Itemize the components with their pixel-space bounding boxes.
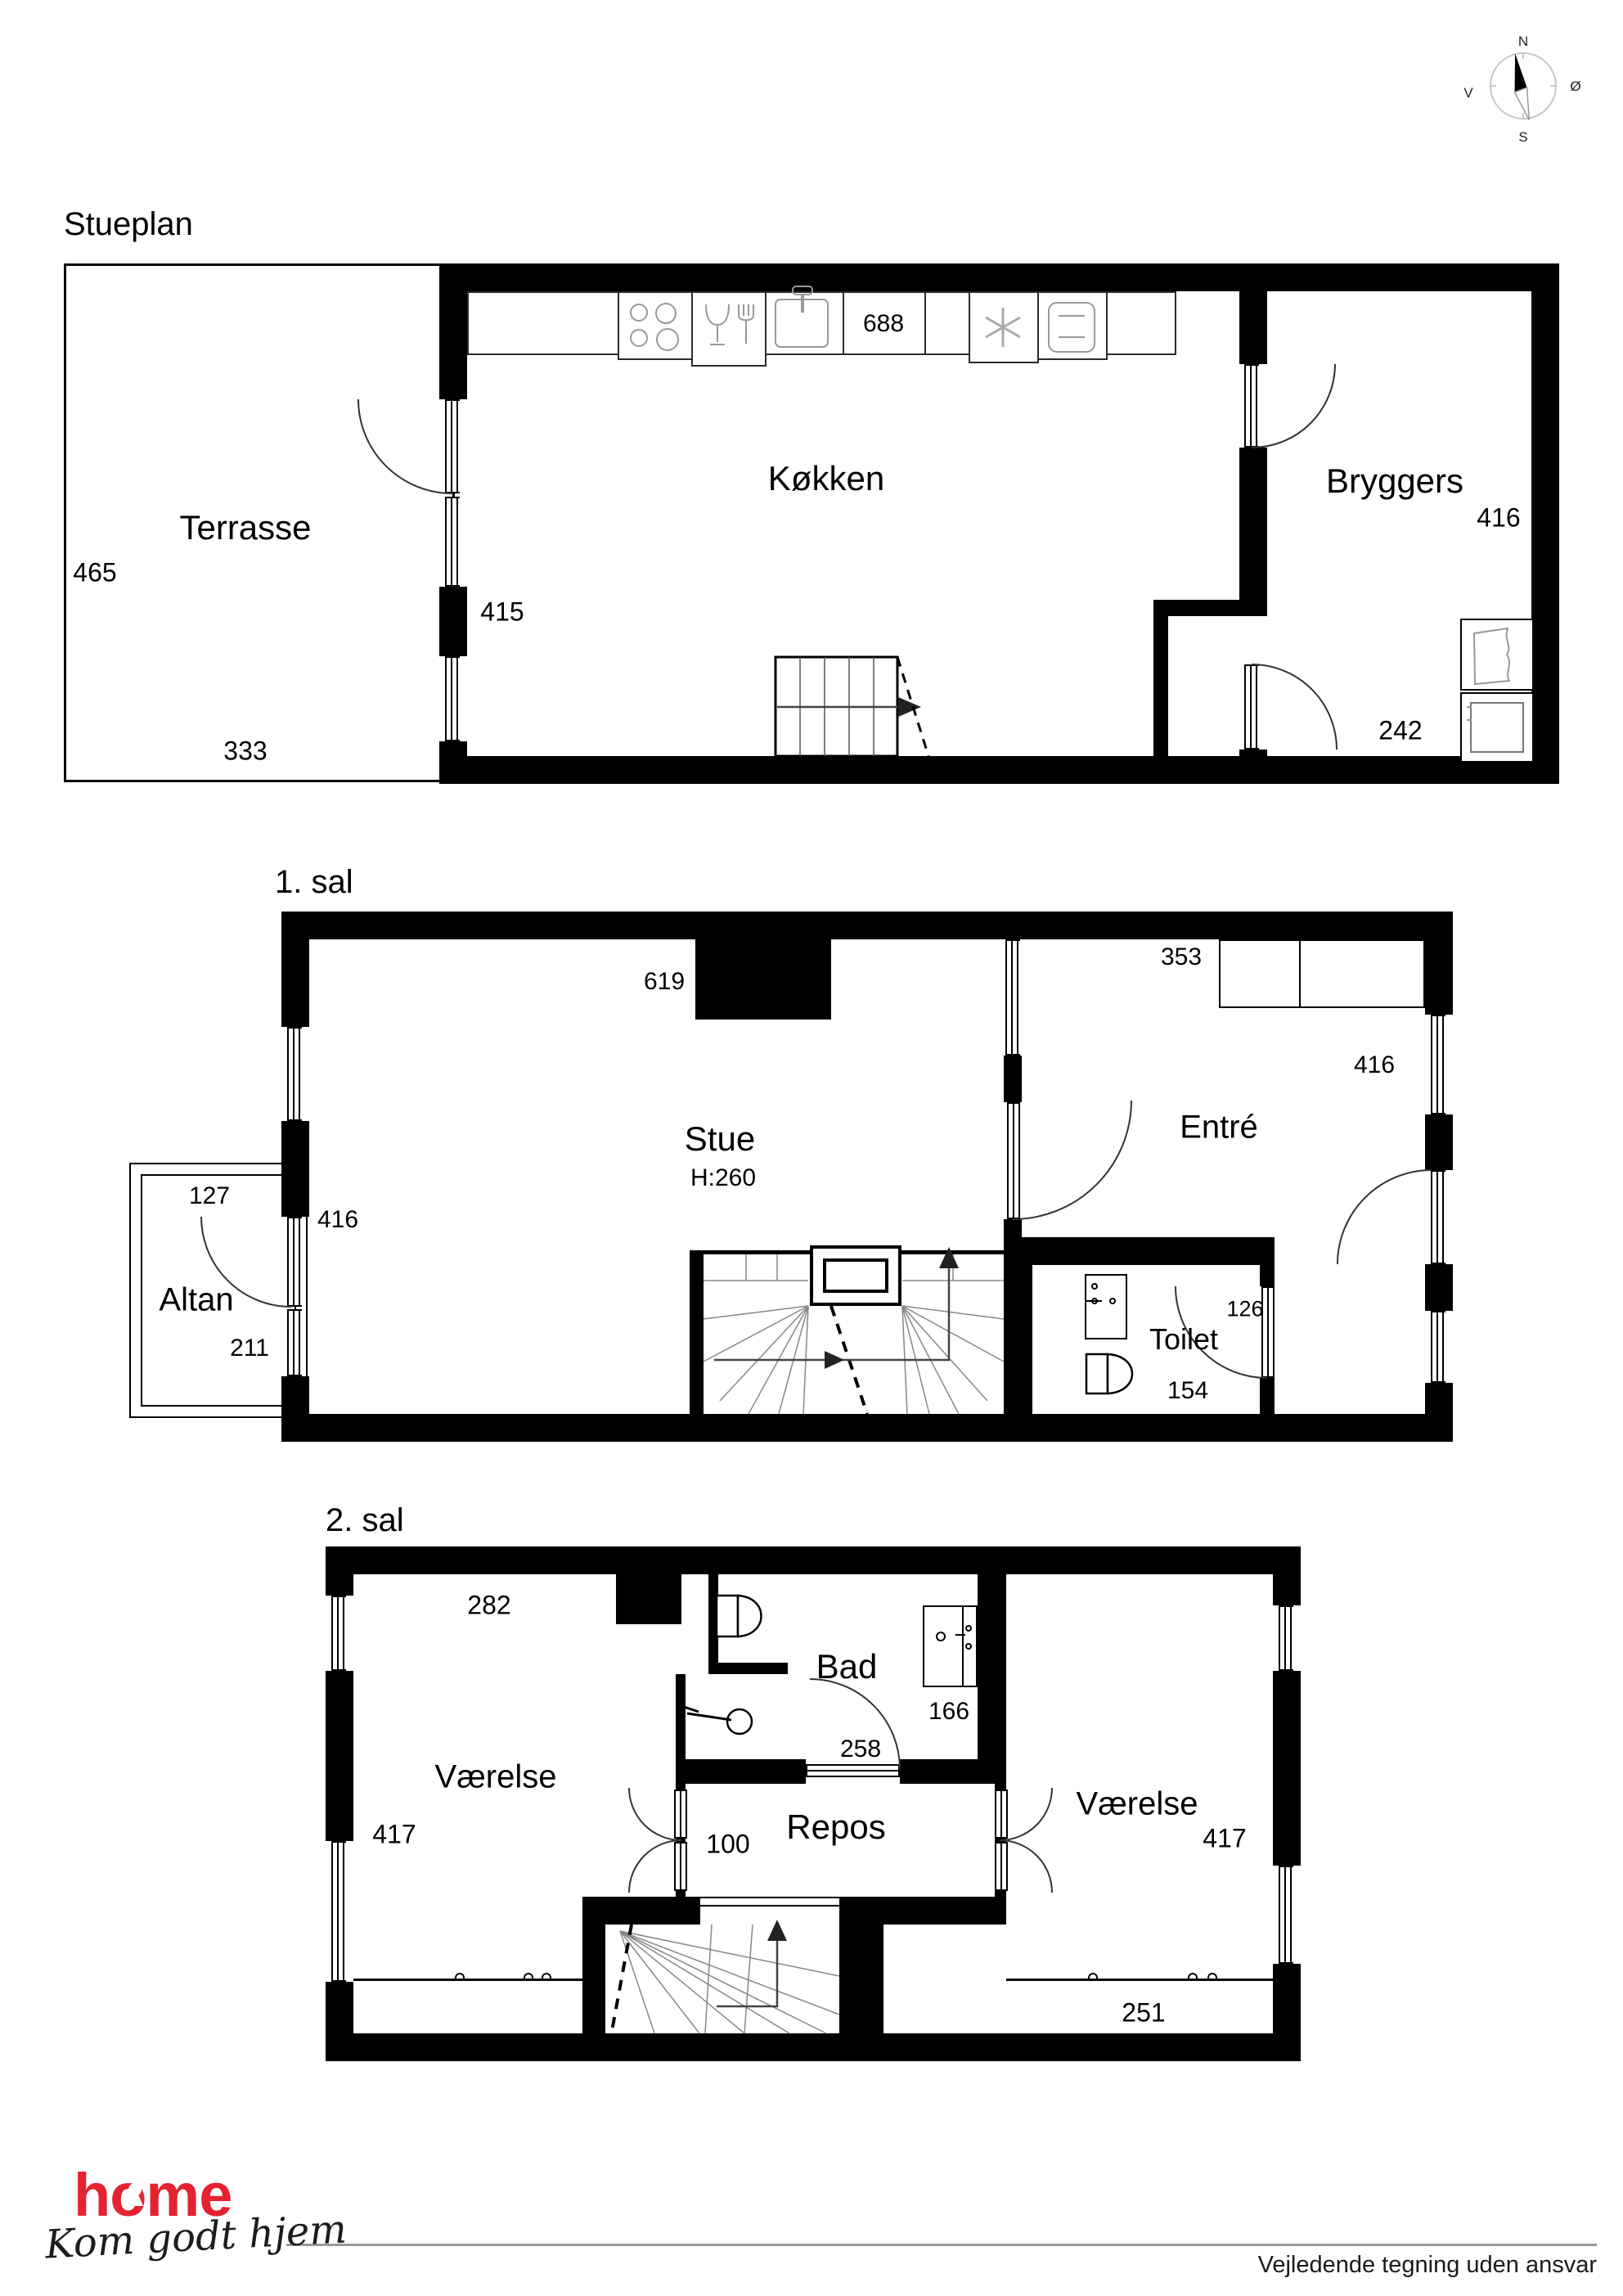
- room-label-bad: Bad: [816, 1647, 878, 1686]
- wall: [281, 912, 1453, 939]
- floor2-title: 1. sal: [275, 864, 353, 901]
- compass-west-label: V: [1463, 85, 1473, 101]
- dishwasher-counter: [691, 291, 767, 367]
- stair-railing: [704, 1250, 810, 1254]
- window: [445, 656, 460, 741]
- wall: [439, 741, 467, 784]
- wall: [995, 1784, 1006, 1790]
- stair-landing-edge: [700, 1897, 839, 1907]
- wall: [839, 1897, 883, 2033]
- glass-partition: [1005, 939, 1020, 1056]
- dim-619: 619: [644, 968, 685, 996]
- compass-east-label: Ø: [1570, 79, 1580, 94]
- dim-242: 242: [1378, 716, 1422, 746]
- wall: [326, 1982, 353, 2061]
- wall: [708, 1574, 718, 1674]
- wall: [708, 1663, 788, 1674]
- toilet-fixture-icon: [1086, 1354, 1132, 1393]
- wall: [1239, 263, 1267, 364]
- vanity-divider: [962, 1605, 964, 1687]
- wall: [1004, 1056, 1022, 1102]
- window: [1431, 1015, 1445, 1114]
- freezer-counter: [969, 291, 1039, 363]
- sink-counter: [765, 291, 844, 355]
- dim-127: 127: [189, 1182, 230, 1210]
- wall: [995, 1839, 1006, 1842]
- window: [445, 497, 460, 587]
- room-label-vaerelse-right: Værelse: [1077, 1786, 1198, 1823]
- compass-north-label: N: [1518, 34, 1528, 49]
- compass-south-label: S: [1518, 129, 1527, 145]
- washing-machine: [1460, 619, 1534, 691]
- wall: [676, 1759, 806, 1784]
- wardrobe: [1219, 939, 1425, 1008]
- wall: [1153, 600, 1267, 616]
- wall: [1239, 448, 1267, 600]
- double-door-leaf: [995, 1790, 1008, 1839]
- wall: [439, 263, 467, 399]
- chimney: [616, 1574, 681, 1624]
- bryggers-door-leaf: [1244, 364, 1259, 448]
- wall: [281, 1376, 309, 1442]
- stairwell-window-inner: [823, 1258, 888, 1293]
- wall: [1425, 1383, 1453, 1442]
- wall: [326, 1671, 353, 1841]
- window: [287, 1027, 302, 1121]
- counter: [924, 291, 970, 355]
- window: [1431, 1311, 1445, 1383]
- double-door-leaf: [995, 1842, 1008, 1891]
- dim-416-bryggers: 416: [1477, 503, 1520, 533]
- window: [331, 1841, 346, 1982]
- dim-416-stue: 416: [317, 1206, 358, 1234]
- dim-100: 100: [706, 1830, 749, 1860]
- wall: [1531, 263, 1559, 784]
- hinge-mark: [455, 1973, 465, 1979]
- floor1-title: Stueplan: [64, 206, 193, 243]
- window: [1279, 1866, 1293, 1964]
- partition-door-leaf: [1007, 1102, 1020, 1219]
- room-label-koekken: Køkken: [768, 459, 884, 498]
- wall: [676, 1891, 686, 1897]
- dim-251: 251: [1122, 1998, 1165, 2028]
- window: [1279, 1605, 1293, 1671]
- double-door-leaf: [674, 1790, 687, 1839]
- counter: [467, 291, 619, 355]
- bad-door-leaf: [806, 1764, 900, 1777]
- disclaimer-text: Vejledende tegning uden ansvar: [1258, 2252, 1597, 2279]
- dim-211: 211: [230, 1335, 269, 1362]
- dim-154: 154: [1167, 1377, 1208, 1405]
- terrace-door-leaf: [445, 399, 460, 493]
- wall: [439, 756, 1559, 784]
- wall: [439, 263, 1559, 291]
- wall: [1004, 1237, 1032, 1414]
- floorplan-page: Stueplan Terrasse 465 333 415 Køkken 688…: [0, 0, 1623, 2296]
- knee-wall-line: [353, 1979, 582, 1981]
- shower-icon: [677, 1707, 752, 1734]
- dim-417-right: 417: [1203, 1824, 1246, 1854]
- wall: [1425, 912, 1453, 1015]
- wall: [1260, 1265, 1275, 1286]
- stair-railing: [901, 1250, 1004, 1254]
- wall: [1032, 1237, 1275, 1265]
- door-arcs-floor1: [358, 364, 1337, 750]
- dim-417-left: 417: [372, 1820, 416, 1850]
- window: [331, 1596, 346, 1671]
- room-label-altan: Altan: [159, 1282, 233, 1319]
- wall: [326, 1546, 1301, 1574]
- wall: [690, 1250, 704, 1414]
- wall: [582, 1897, 605, 2033]
- compass-icon: N Ø S V: [1463, 34, 1580, 145]
- oven-counter: [1037, 291, 1108, 360]
- wall: [1004, 1219, 1022, 1237]
- room-label-repos: Repos: [786, 1808, 885, 1847]
- dim-166: 166: [928, 1698, 969, 1726]
- balcony-door-leaf: [287, 1217, 302, 1307]
- wall: [439, 587, 467, 656]
- sink-fixture-icon: [1086, 1275, 1126, 1339]
- closet-door-leaf: [1244, 664, 1259, 750]
- dim-333: 333: [223, 736, 267, 767]
- dim-688: 688: [863, 310, 904, 338]
- dim-416-entre: 416: [1354, 1051, 1395, 1079]
- dim-126: 126: [1226, 1297, 1263, 1322]
- room-label-vaerelse-left: Værelse: [435, 1759, 557, 1796]
- stove-counter: [618, 291, 693, 360]
- room-label-toilet: Toilet: [1149, 1322, 1218, 1357]
- wall: [1260, 1378, 1275, 1414]
- hinge-mark: [1207, 1973, 1217, 1979]
- entre-door-leaf: [1431, 1170, 1445, 1264]
- wall: [1425, 1264, 1453, 1311]
- wall: [978, 1574, 1006, 1784]
- hinge-mark: [524, 1973, 533, 1979]
- dim-258: 258: [840, 1736, 881, 1763]
- dryer-drum: [1470, 702, 1524, 753]
- hinge-mark: [542, 1973, 551, 1979]
- wall: [1153, 616, 1168, 756]
- toilet-fixture-icon: [717, 1596, 762, 1636]
- wall: [281, 1414, 1453, 1442]
- wall: [676, 1839, 686, 1842]
- wall: [1273, 1671, 1301, 1866]
- wall: [1239, 750, 1267, 756]
- room-label-bryggers: Bryggers: [1326, 461, 1463, 501]
- hinge-mark: [1188, 1973, 1198, 1979]
- stue-ceiling-height: H:260: [690, 1164, 756, 1192]
- floor3-title: 2. sal: [326, 1502, 404, 1539]
- dim-415: 415: [480, 597, 524, 628]
- stairs-floor1: [776, 657, 928, 756]
- dim-465: 465: [73, 558, 116, 588]
- wall: [281, 912, 309, 1027]
- stairs-floor3: [612, 1920, 839, 2033]
- wall: [326, 2033, 1301, 2061]
- room-label-entre: Entré: [1180, 1110, 1258, 1146]
- double-door-leaf: [674, 1842, 687, 1891]
- knee-wall-line: [1006, 1979, 1273, 1981]
- wall: [995, 1891, 1006, 1897]
- wall: [1273, 1964, 1301, 2061]
- wall: [1425, 1114, 1453, 1170]
- room-label-stue: Stue: [685, 1119, 755, 1159]
- dim-282: 282: [467, 1591, 510, 1621]
- vanity: [923, 1605, 978, 1687]
- wardrobe-divider: [1299, 939, 1301, 1008]
- counter: [1106, 291, 1176, 355]
- chimney: [695, 939, 831, 1020]
- wall: [281, 1121, 309, 1217]
- hinge-mark: [1088, 1973, 1098, 1979]
- footer-divider-line: [286, 2244, 1597, 2246]
- room-label-terrasse: Terrasse: [179, 508, 311, 547]
- window: [287, 1309, 302, 1376]
- wall: [326, 1546, 353, 1596]
- wall: [900, 1759, 978, 1784]
- dim-353: 353: [1161, 943, 1202, 971]
- wall: [1273, 1546, 1301, 1605]
